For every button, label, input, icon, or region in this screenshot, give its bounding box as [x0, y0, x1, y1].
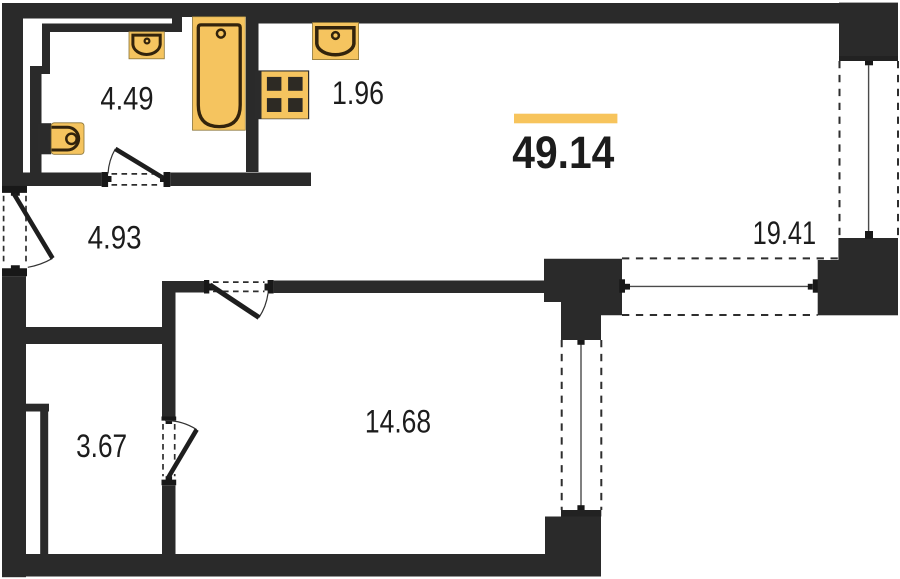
svg-text:3.67: 3.67 [76, 428, 127, 464]
svg-text:14.68: 14.68 [365, 404, 431, 440]
svg-text:4.49: 4.49 [100, 81, 153, 117]
svg-text:4.93: 4.93 [88, 220, 142, 256]
svg-text:49.14: 49.14 [512, 127, 614, 178]
svg-text:19.41: 19.41 [753, 215, 817, 251]
svg-text:1.96: 1.96 [332, 75, 384, 111]
